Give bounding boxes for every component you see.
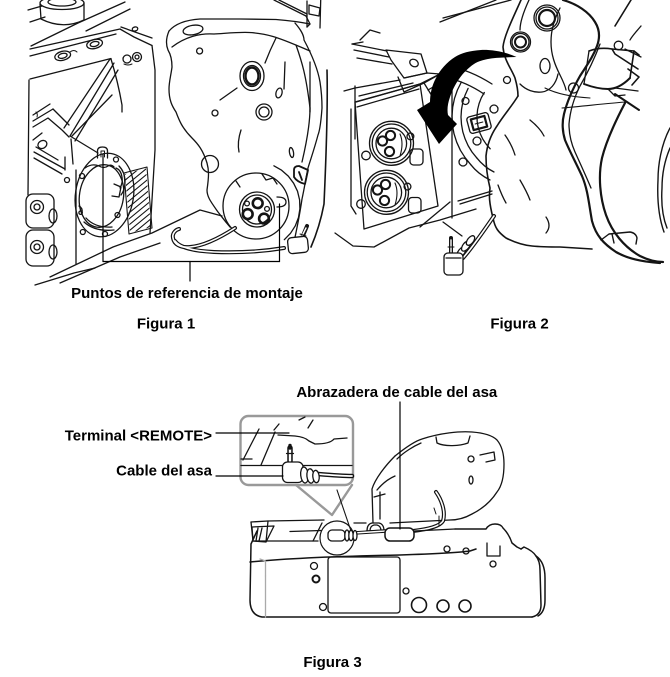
svg-text:Figura 3: Figura 3	[303, 654, 361, 671]
svg-text:Terminal <REMOTE>: Terminal <REMOTE>	[65, 428, 213, 445]
svg-text:Puntos de referencia de montaj: Puntos de referencia de montaje	[71, 285, 303, 302]
svg-text:Figura 1: Figura 1	[137, 316, 195, 333]
svg-text:Cable del asa: Cable del asa	[116, 463, 213, 480]
svg-text:Abrazadera de cable del asa: Abrazadera de cable del asa	[296, 384, 498, 401]
svg-text:Figura 2: Figura 2	[490, 316, 548, 333]
